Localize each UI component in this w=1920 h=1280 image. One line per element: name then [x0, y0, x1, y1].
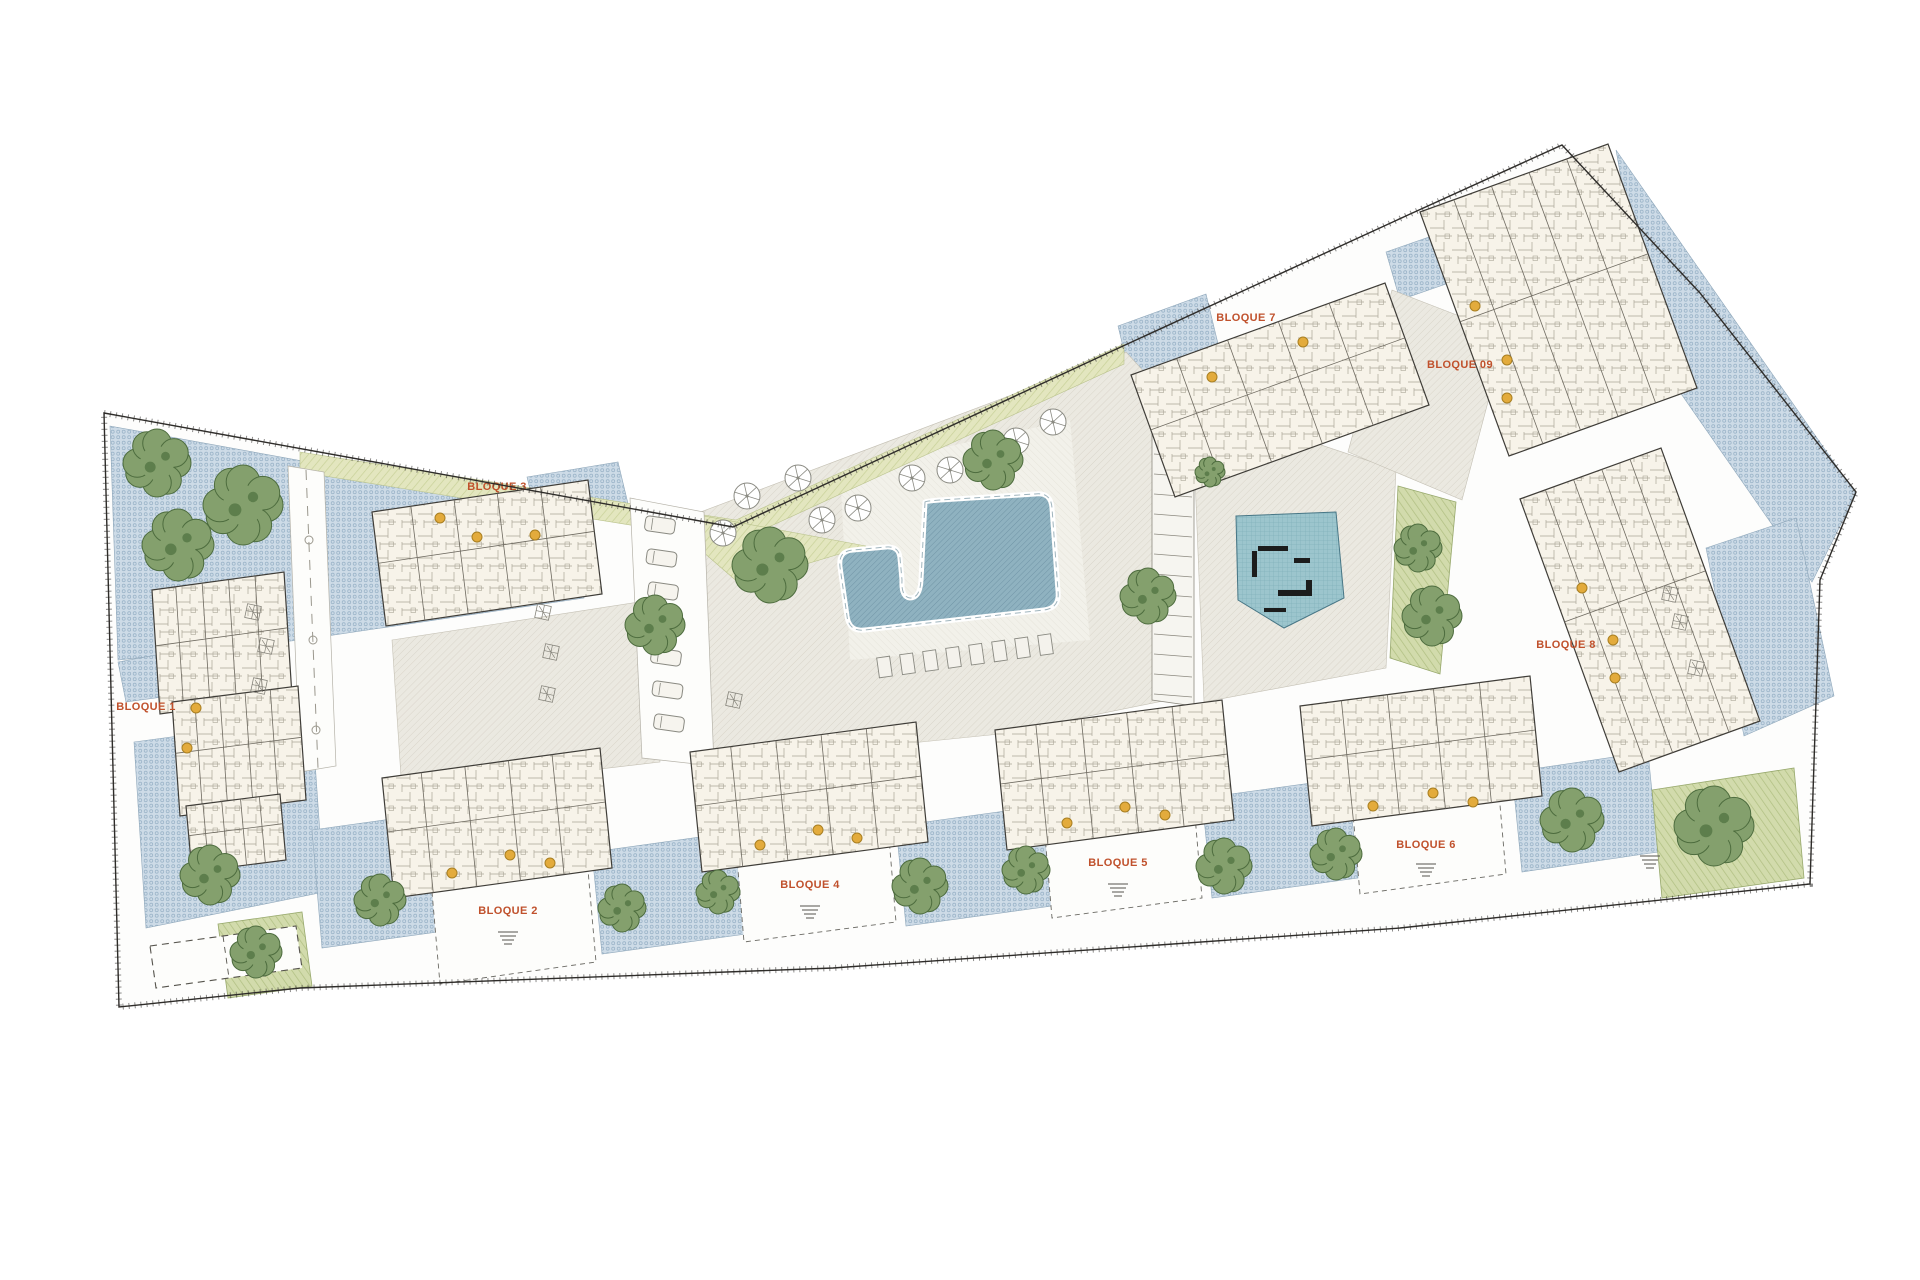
parasol-pole [820, 518, 823, 521]
tree-crown [140, 446, 174, 480]
tree-crown [367, 887, 393, 913]
entrance-marker [1468, 797, 1478, 807]
tree-shade [247, 951, 255, 959]
tree-shade [997, 450, 1005, 458]
siteplan-svg: BLOQUE 1BLOQUE 2BLOQUE 3BLOQUE 4BLOQUE 5… [0, 0, 1920, 1280]
entrance-marker [1502, 393, 1512, 403]
entrance-marker [852, 833, 862, 843]
sun-lounger-icon [1015, 637, 1031, 659]
entrance-marker [182, 743, 192, 753]
tree-shade [259, 943, 266, 950]
entrance-marker [1428, 788, 1438, 798]
bloque-label: BLOQUE 2 [478, 905, 537, 917]
parasol-pole [721, 531, 724, 534]
entrance-marker [1368, 801, 1378, 811]
play-equipment-icon [1278, 590, 1308, 596]
tree-shade [145, 462, 156, 473]
play-equipment-icon [1294, 558, 1310, 563]
tree-shade [161, 452, 170, 461]
tree-shade [644, 624, 654, 634]
tree-shade [659, 615, 667, 623]
tree-shade [1421, 615, 1431, 625]
tree-shade [910, 885, 919, 894]
bloque-label: BLOQUE 6 [1396, 839, 1455, 851]
entrance-marker [191, 703, 201, 713]
play-equipment-icon [1264, 608, 1286, 612]
entrance-marker [1298, 337, 1308, 347]
entrance-marker [1577, 583, 1587, 593]
entrance-marker [530, 530, 540, 540]
bloque-label: BLOQUE 5 [1088, 857, 1147, 869]
tree-crown [1417, 601, 1447, 631]
tree-shade [371, 899, 379, 907]
tree-shade [165, 544, 177, 556]
tree-crown [1210, 852, 1238, 880]
entrance-marker [1470, 301, 1480, 311]
parasol-pole [948, 468, 951, 471]
tree-shade [613, 907, 621, 915]
entrance-marker [1120, 802, 1130, 812]
sun-lounger-icon [900, 653, 916, 675]
tree-crown [1134, 582, 1162, 610]
parasol-icon [845, 495, 871, 521]
entrance-marker [472, 532, 482, 542]
tree-crown [610, 896, 634, 920]
tree-shade [182, 533, 191, 542]
tree-shade [756, 563, 768, 575]
entrance-marker [505, 850, 515, 860]
tree-shade [383, 891, 390, 898]
entrance-marker [813, 825, 823, 835]
site-plan: BLOQUE 1BLOQUE 2BLOQUE 3BLOQUE 4BLOQUE 5… [0, 0, 1920, 1280]
parasol-icon [937, 457, 963, 483]
entrance-marker [435, 513, 445, 523]
tree-shade [248, 492, 258, 502]
tree-crown [1014, 858, 1038, 882]
parasol-pole [856, 506, 859, 509]
tree-shade [1576, 809, 1584, 817]
tree-shade [199, 874, 209, 884]
entrance-marker [1502, 355, 1512, 365]
play-equipment-icon [1306, 580, 1312, 596]
tree-crown [1203, 465, 1218, 480]
tree-crown [1323, 841, 1349, 867]
tree-shade [1212, 467, 1216, 471]
tree-crown [1556, 804, 1588, 836]
tree-crown [1694, 806, 1734, 846]
tree-crown [195, 860, 225, 890]
sun-lounger-icon [923, 650, 939, 672]
tree-crown [906, 872, 934, 900]
tree-shade [1227, 857, 1234, 864]
bloque-label: BLOQUE 4 [780, 879, 840, 891]
parasol-pole [796, 476, 799, 479]
tree-crown [243, 939, 269, 965]
sun-lounger-icon [969, 643, 985, 665]
entrance-marker [755, 840, 765, 850]
sun-lounger-icon [992, 640, 1008, 662]
tree-shade [1214, 865, 1223, 874]
tree-shade [1560, 819, 1570, 829]
tree-shade [1719, 813, 1729, 823]
entrance-marker [447, 868, 457, 878]
tree-shade [214, 865, 222, 873]
parasol-pole [745, 494, 748, 497]
tree-crown [751, 546, 789, 584]
tree-shade [1205, 471, 1210, 476]
sun-lounger-icon [946, 647, 962, 669]
tree-crown [978, 445, 1008, 475]
tree-shade [1421, 540, 1427, 546]
tree-shade [1029, 862, 1035, 868]
tree-icon [1195, 457, 1225, 487]
tree-crown [640, 610, 670, 640]
parasol-icon [899, 465, 925, 491]
tree-shade [1017, 869, 1025, 877]
tree-shade [229, 503, 242, 516]
entrance-marker [1610, 673, 1620, 683]
parasol-icon [809, 507, 835, 533]
bloque-label: BLOQUE 7 [1216, 312, 1275, 324]
tree-shade [625, 900, 631, 906]
entrance-marker [1160, 810, 1170, 820]
parasol-pole [910, 476, 913, 479]
sun-lounger-icon [877, 656, 893, 678]
sun-lounger-icon [1038, 634, 1054, 656]
tree-crown [1406, 536, 1430, 560]
tree-shade [982, 459, 992, 469]
tree-shade [721, 885, 727, 891]
tree-crown [160, 527, 196, 563]
tree-shade [710, 891, 717, 898]
play-equipment-icon [1258, 546, 1288, 551]
entrance-marker [1207, 372, 1217, 382]
entrance-marker [1062, 818, 1072, 828]
entrance-marker [1608, 635, 1618, 645]
tree-shade [1151, 587, 1158, 594]
play-equipment-icon [1252, 551, 1257, 577]
tree-shade [775, 552, 785, 562]
parasol-icon [785, 465, 811, 491]
parasol-icon [734, 483, 760, 509]
tree-shade [923, 877, 930, 884]
parasol-pole [1051, 420, 1054, 423]
tree-shade [1138, 595, 1147, 604]
tree-shade [1436, 606, 1444, 614]
tree-shade [1700, 824, 1713, 837]
parasol-icon [1040, 409, 1066, 435]
tree-crown [707, 881, 729, 903]
entrance-marker [545, 858, 555, 868]
bloque-label: BLOQUE 8 [1536, 639, 1595, 651]
tree-shade [1327, 853, 1335, 861]
bloque-label: BLOQUE 1 [116, 701, 175, 713]
tree-shade [1339, 845, 1346, 852]
bloque-label: BLOQUE 09 [1427, 359, 1493, 371]
tree-crown [223, 485, 263, 525]
tree-shade [1409, 547, 1417, 555]
